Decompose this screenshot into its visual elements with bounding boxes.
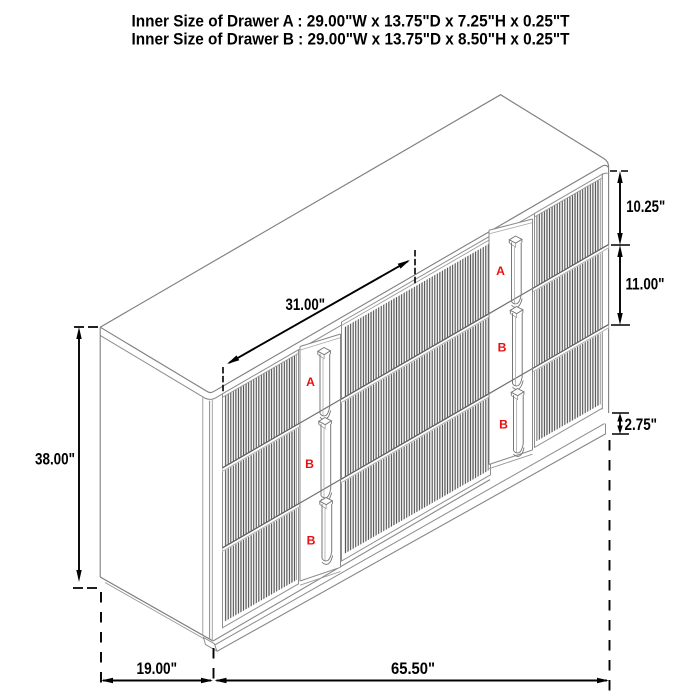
svg-text:10.25": 10.25" <box>626 198 665 216</box>
svg-text:Inner Size of Drawer B : 29.00: Inner Size of Drawer B : 29.00"W x 13.75… <box>132 29 571 48</box>
svg-text:B: B <box>499 418 508 432</box>
svg-text:A: A <box>306 375 315 389</box>
svg-text:B: B <box>307 534 316 548</box>
svg-text:31.00": 31.00" <box>286 296 326 314</box>
svg-text:11.00": 11.00" <box>626 276 665 294</box>
svg-text:38.00": 38.00" <box>35 451 75 469</box>
svg-text:B: B <box>305 457 314 471</box>
svg-text:19.00": 19.00" <box>137 660 178 678</box>
svg-text:65.50": 65.50" <box>391 660 435 678</box>
svg-text:A: A <box>496 264 505 278</box>
svg-text:Inner Size of Drawer A : 29.00: Inner Size of Drawer A : 29.00"W x 13.75… <box>132 11 571 30</box>
svg-text:B: B <box>498 341 507 355</box>
svg-text:2.75": 2.75" <box>625 416 658 434</box>
